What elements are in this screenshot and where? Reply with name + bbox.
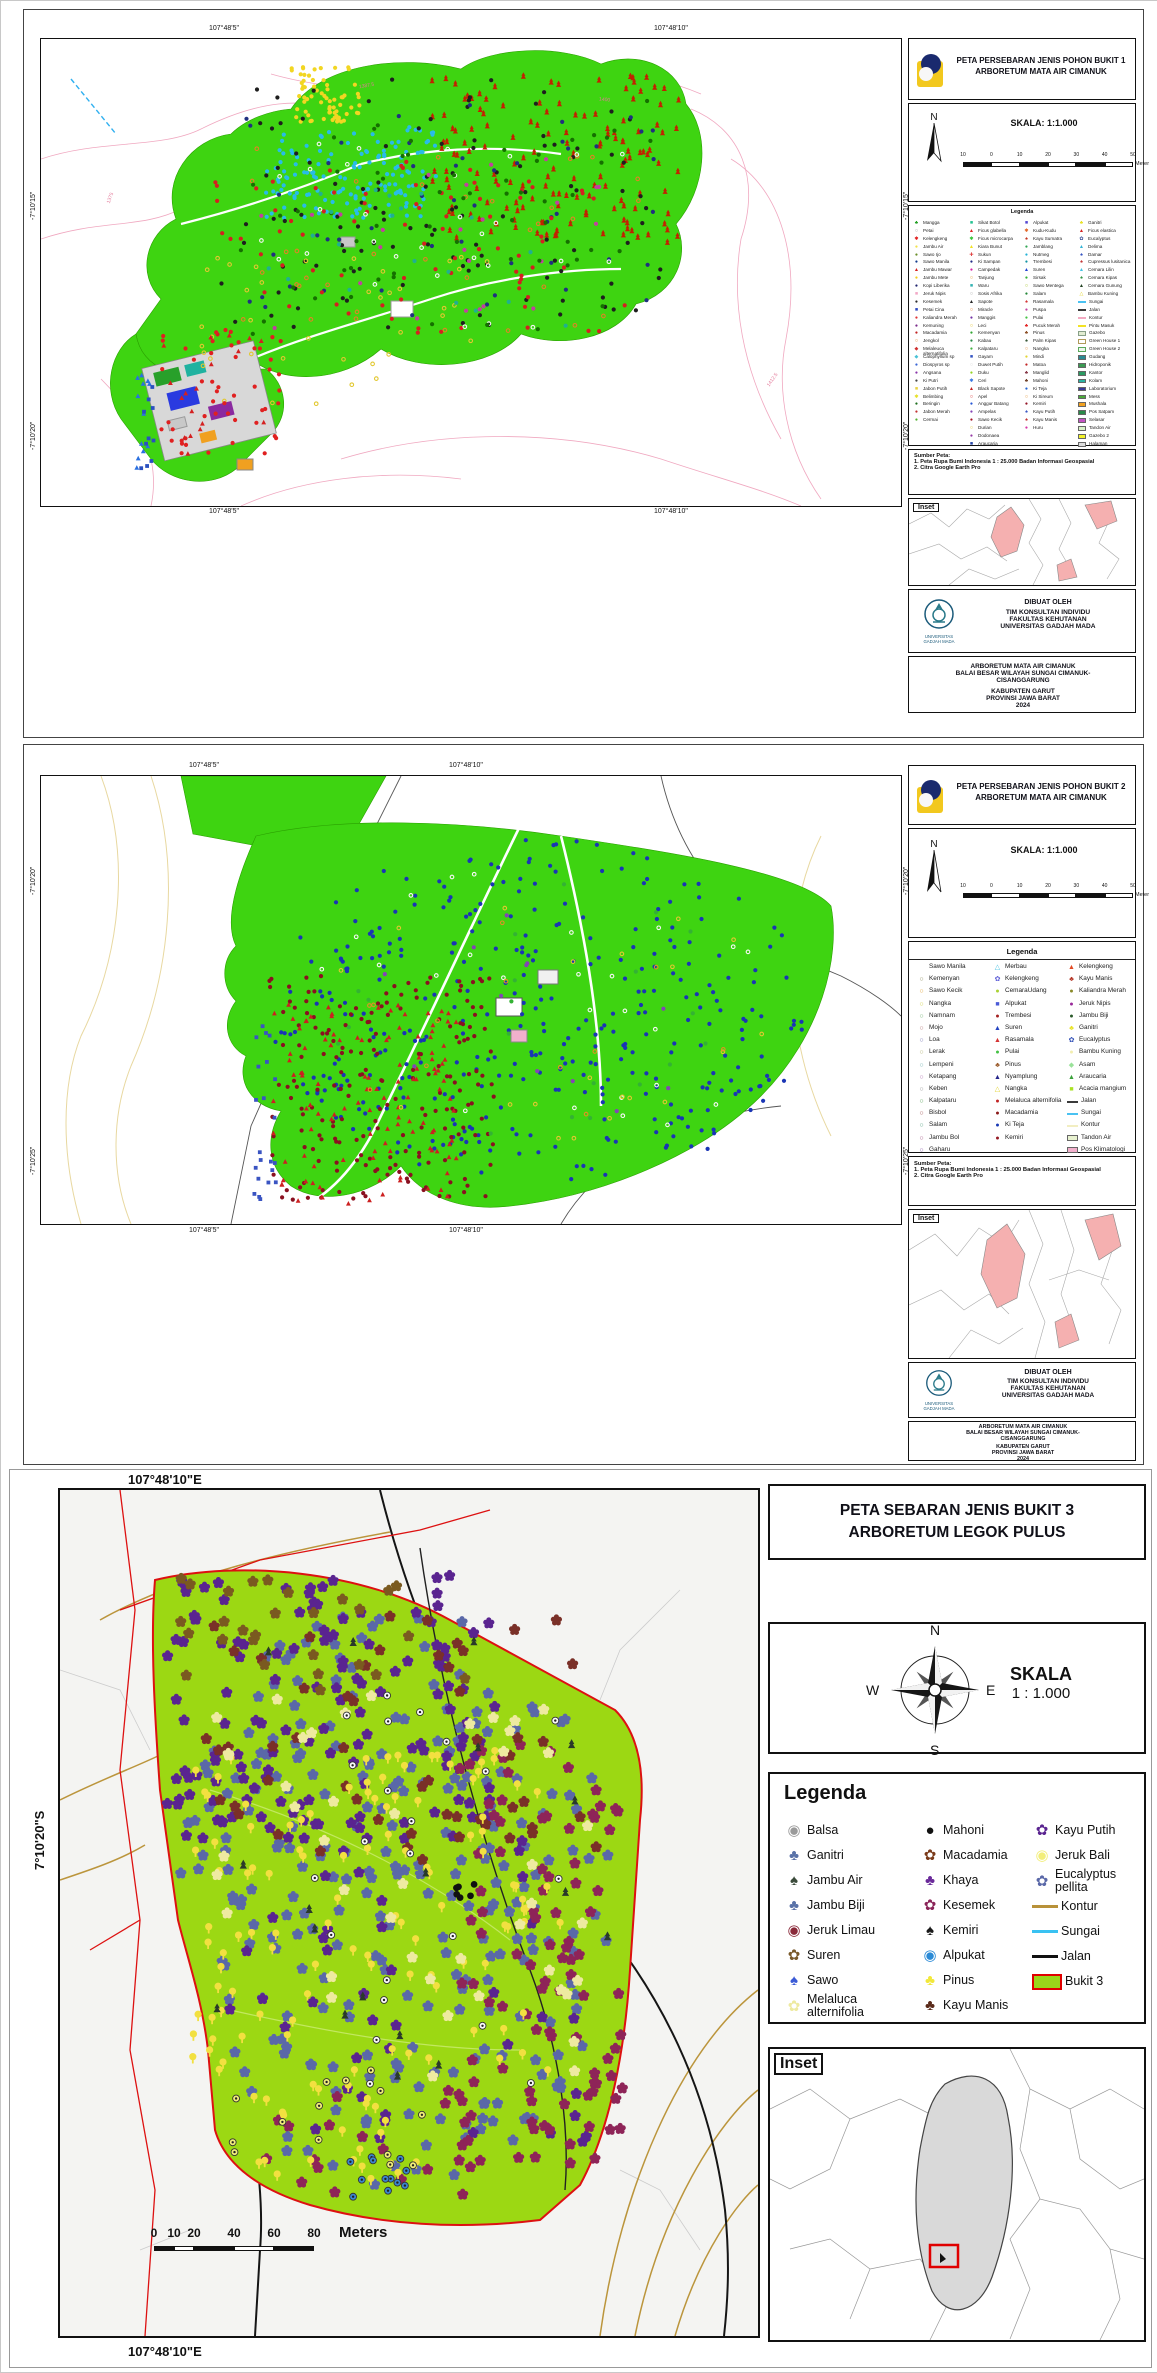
legend-marker-icon: △ — [1078, 292, 1085, 297]
map3-legend-column-3: ✿Kayu Putih◉Jeruk Bali✿Eucalyptus pellit… — [1032, 1818, 1144, 1994]
legend-item: ♣Ganitri — [784, 1843, 912, 1868]
ugm-logo-icon: UNIVERSITASGADJAH MADA — [917, 1369, 961, 1411]
scalebar-number: 10 — [1017, 883, 1023, 889]
loc-line-3: 2024 — [913, 1456, 1133, 1462]
compass-w: W — [866, 1682, 879, 1698]
legend-item-label: Kemiri — [1033, 402, 1046, 407]
map3-title-line1: PETA SEBARAN JENIS BUKIT 3 — [770, 1500, 1144, 1522]
coordinate-label: 107°48'10" — [449, 762, 483, 769]
legend-marker-icon: ● — [913, 276, 920, 281]
scalebar-unit: Meters — [339, 2224, 387, 2241]
legend-item: ●Angsana — [913, 371, 966, 379]
compass-n: N — [930, 1622, 940, 1638]
legend-item: ▲Delima — [1078, 245, 1135, 253]
coordinate-label: -7°10'25" — [30, 1147, 37, 1175]
legend-item-label: Jabon Merah — [923, 410, 950, 415]
legend-item-label: Nangka — [929, 1001, 951, 1008]
map1-legend-column-3: ■Alpukat✱Kudu-Kudu♠Kayu Sumatra●Jamblang… — [1023, 221, 1076, 434]
compass-e: E — [986, 1682, 995, 1698]
legend-marker-icon: ♠ — [1023, 410, 1030, 415]
map3-inset-box: Inset — [768, 2047, 1146, 2342]
legend-item: ●Kaliandra Merah — [1067, 988, 1135, 1000]
legend-title: Legenda — [909, 947, 1135, 960]
legend-item-label: Sungai — [1061, 1925, 1100, 1938]
legend-item: ◆Asam — [1067, 1062, 1135, 1074]
map3-compass-box: N E S W SKALA 1 : 1.000 — [768, 1622, 1146, 1754]
legend-marker-icon: ▲ — [968, 245, 975, 250]
legend-marker-icon: ♣ — [1067, 976, 1076, 983]
legend-item-label: Trembesi — [1033, 260, 1052, 265]
legend-marker-icon — [1078, 309, 1086, 311]
legend-item-label: Mindi — [1033, 355, 1044, 360]
legend-marker-icon: ● — [913, 316, 920, 321]
legend-marker-icon: ● — [1023, 387, 1030, 392]
legend-item-label: Tandon Air — [1081, 1135, 1111, 1142]
legend-marker-icon: ● — [1023, 355, 1030, 360]
org-line-3: CISANGGARUNG — [913, 1436, 1133, 1442]
legend-item-label: Ceri — [978, 379, 986, 384]
legend-item-label: Kemenyan — [929, 976, 960, 983]
legend-item: ●Trembesi — [993, 1013, 1063, 1025]
legend-marker-icon: ● — [968, 331, 975, 336]
legend-item-label: Pucuk Merah — [1033, 324, 1060, 329]
legend-marker-icon: ● — [1023, 260, 1030, 265]
loc-line-3: 2024 — [913, 702, 1133, 709]
legend-item-label: Tanjung — [978, 276, 994, 281]
legend-item-label: Sawo Manila — [929, 964, 966, 971]
legend-marker-icon — [1078, 317, 1086, 319]
legend-item-label: Sukun — [978, 253, 991, 258]
legend-item-label: Kalpataru — [929, 1098, 956, 1105]
legend-item: ◉Jeruk Limau — [784, 1918, 912, 1943]
legend-marker-icon: ○ — [1023, 395, 1030, 400]
legend-item-label: Halaman — [1089, 442, 1107, 447]
legend-marker-icon — [1078, 371, 1086, 376]
legend-marker-icon: ○ — [917, 1086, 926, 1093]
legend-marker-icon: ◉ — [1032, 1848, 1052, 1863]
legend-marker-icon: ♣ — [1023, 324, 1030, 329]
legend-item-label: Kontur — [1061, 1900, 1098, 1913]
legend-item-label: Jambu Biji — [807, 1899, 865, 1912]
scalebar-number: 40 — [1102, 152, 1108, 158]
legend-marker-icon: ♠ — [920, 1923, 940, 1938]
legend-marker-icon: ■ — [968, 355, 975, 360]
legend-marker-icon — [1078, 402, 1086, 407]
scalebar-number: 80 — [307, 2226, 320, 2240]
map1-legend-column-4: ♣Ganitri▲Ficus elastica✿Eucalyptus▲Delim… — [1078, 221, 1135, 450]
legend-item-label: Alpukat — [943, 1949, 985, 1962]
legend-item-label: Kemiri — [1005, 1135, 1023, 1142]
legend-item-label: Pintu Masuk — [1089, 324, 1114, 329]
coordinate-label: -7°10'20" — [30, 867, 37, 895]
map1-legend-column-2: ■Sikat Botol▲Ficus glabella✱Ficus microc… — [968, 221, 1021, 450]
legend-item-label: Jambu Bol — [929, 1135, 959, 1142]
legend-item: ♠Kayu Manis — [1023, 418, 1076, 426]
legend-item: ◉Balsa — [784, 1818, 912, 1843]
legend-item: Laboratorium — [1078, 387, 1135, 395]
legend-marker-icon: ● — [913, 284, 920, 289]
legend-marker-icon: ✱ — [1023, 229, 1030, 234]
legend-marker-icon: ● — [1067, 1049, 1076, 1056]
map3-inset-map — [770, 2049, 1144, 2340]
legend-item: Mess — [1078, 395, 1135, 403]
legend-item-label: Bukit 3 — [1065, 1975, 1103, 1988]
legend-marker-icon: ♣ — [1078, 221, 1085, 226]
legend-item-label: Ketapang — [929, 1074, 956, 1081]
legend-marker-icon: ▲ — [1023, 268, 1030, 273]
map2-title-line1: PETA PERSEBARAN JENIS POHON BUKIT 2 — [951, 782, 1131, 793]
legend-item: ○Lerak — [917, 1049, 987, 1061]
legend-item-label: Petai — [923, 229, 933, 234]
org-line-1: ARBORETUM MATA AIR CIMANUK — [913, 663, 1133, 670]
scalebar-unit: Meter — [1135, 892, 1149, 898]
legend-item-label: Manglid — [1033, 371, 1049, 376]
legend-marker-icon: ● — [968, 410, 975, 415]
legend-marker-icon: ● — [913, 260, 920, 265]
coordinate-label: 107°48'10" — [654, 508, 688, 515]
legend-item-label: Balsa — [807, 1824, 838, 1837]
legend-item-label: Rasamala — [1033, 300, 1054, 305]
legend-marker-icon: ○ — [917, 1135, 926, 1142]
map1-scalebar: 1001020304050Meter — [963, 152, 1133, 178]
legend-item-label: Lerak — [929, 1049, 945, 1056]
legend-item: ●Jamblang — [1023, 245, 1076, 253]
legend-marker-icon: ✿ — [1032, 1874, 1052, 1889]
map1-credit-box: UNIVERSITASGADJAH MADA DIBUAT OLEH TIM K… — [908, 589, 1136, 653]
map-poster-page: 107°48'5" 107°48'10" 107°48'5" 107°48'10… — [0, 0, 1157, 2373]
legend-item: ○Tanjung — [968, 276, 1021, 284]
legend-marker-icon: ♠ — [1078, 276, 1085, 281]
legend-marker-icon: ✱ — [913, 237, 920, 242]
coordinate-label: -7°10'20" — [30, 422, 37, 450]
map2-title-box: PETA PERSEBARAN JENIS POHON BUKIT 2 ARBO… — [908, 765, 1136, 825]
coordinate-label: 107°48'5" — [209, 25, 239, 32]
legend-marker-icon: ◉ — [784, 1823, 804, 1838]
inset-label: Inset — [913, 1214, 939, 1223]
legend-marker-icon: ● — [1023, 292, 1030, 297]
legend-item-label: Jeruk Limau — [807, 1924, 875, 1937]
legend-marker-icon: ▲ — [1067, 1074, 1076, 1081]
map2-inset-box: Inset — [908, 1209, 1136, 1359]
map2-scale-label: SKALA: 1:1.000 — [959, 845, 1129, 855]
legend-item-label: Gaharu — [929, 1147, 950, 1154]
legend-marker-icon: △ — [993, 964, 1002, 971]
legend-item-label: Miracle — [978, 308, 993, 313]
map1-sheet: 107°48'5" 107°48'10" 107°48'5" 107°48'10… — [23, 9, 1144, 738]
legend-item-label: Jengkol — [923, 339, 939, 344]
map1-legend-box: Legenda ♣Mangga○Petai✱Kelengkeng●Jambu A… — [908, 205, 1136, 446]
legend-item-label: Ganitri — [1088, 221, 1102, 226]
legend-item-label: Petai Cina — [923, 308, 944, 313]
legend-marker-icon — [1078, 434, 1086, 439]
legend-marker-icon — [1078, 410, 1086, 415]
legend-item-label: Kontur — [1081, 1122, 1100, 1129]
legend-marker-icon: △ — [993, 1086, 1002, 1093]
scalebar-number: 40 — [227, 2226, 240, 2240]
legend-item: ✿Macadamia — [920, 1843, 1028, 1868]
coordinate-label: 107°48'10"E — [128, 1472, 202, 1487]
legend-item-label: Acacia mangium — [1079, 1086, 1126, 1093]
scalebar-number: 50 — [1130, 152, 1136, 158]
legend-marker-icon: ■ — [913, 387, 920, 392]
legend-item-label: Kemuning — [923, 324, 944, 329]
legend-item-label: Jalan — [1061, 1950, 1091, 1963]
legend-item: ♣Jambu Biji — [784, 1893, 912, 1918]
legend-marker-icon: ● — [1023, 308, 1030, 313]
legend-item-label: Green House 1 — [1089, 339, 1120, 344]
legend-marker-icon: ■ — [968, 221, 975, 226]
legend-item-label: Loa — [929, 1037, 940, 1044]
legend-item-label: Ki Sireum — [1033, 395, 1053, 400]
legend-marker-icon: ○ — [917, 1062, 926, 1069]
legend-marker-icon: ● — [1023, 276, 1030, 281]
legend-item-label: CemaraUdang — [1005, 988, 1047, 995]
map2-inset-map — [909, 1210, 1135, 1358]
legend-item-label: Kantor — [1089, 371, 1103, 376]
legend-marker-icon: ● — [968, 347, 975, 352]
legend-marker-icon: ○ — [917, 1147, 926, 1154]
legend-marker-icon: ◉ — [920, 1948, 940, 1963]
legend-marker-icon: ♣ — [920, 1998, 940, 2013]
credit-heading: DIBUAT OLEH — [965, 599, 1131, 606]
legend-item-label: Nutmeg — [1033, 253, 1049, 258]
scalebar-number: 60 — [267, 2226, 280, 2240]
legend-item: ○Jambu Bol — [917, 1135, 987, 1147]
legend-item-label: Jalan — [1089, 308, 1100, 313]
legend-marker-icon: ○ — [917, 1025, 926, 1032]
legend-marker-icon — [1078, 325, 1086, 327]
legend-marker-icon: ● — [913, 300, 920, 305]
legend-marker-icon — [1078, 347, 1086, 352]
legend-item-label: Mojo — [929, 1025, 943, 1032]
coordinate-label: 107°48'10"E — [128, 2344, 202, 2359]
legend-marker-icon: ▲ — [1078, 268, 1085, 273]
legend-marker-icon: ● — [968, 418, 975, 423]
legend-item: ○Nangka — [917, 1001, 987, 1013]
legend-marker-icon: ▲ — [1078, 229, 1085, 234]
legend-item-label: Melaluca alternifolia — [807, 1993, 912, 2019]
legend-item-label: Puspa — [1033, 308, 1046, 313]
scalebar-number: 10 — [167, 2226, 180, 2240]
legend-marker-icon: ✚ — [968, 253, 975, 258]
legend-item-label: Rasamala — [1005, 1037, 1034, 1044]
legend-marker-icon: ▲ — [1078, 245, 1085, 250]
legend-item: ○Nangka — [1023, 347, 1076, 355]
scalebar-number: 10 — [1017, 152, 1023, 158]
legend-item-label: Palm Kipas — [1033, 339, 1056, 344]
coordinate-label: 107°48'10" — [654, 25, 688, 32]
legend-marker-icon: ○ — [913, 229, 920, 234]
legend-item: ●Manggis — [968, 316, 1021, 324]
legend-marker-icon: ○ — [917, 1110, 926, 1117]
legend-marker-icon: ● — [968, 260, 975, 265]
legend-marker-icon: ♣ — [784, 1848, 804, 1863]
legend-item: ○Bisbol — [917, 1110, 987, 1122]
legend-marker-icon: ● — [1023, 245, 1030, 250]
legend-marker-icon: ■ — [1067, 1086, 1076, 1093]
legend-marker-icon: ✿ — [784, 1948, 804, 1963]
legend-item-label: Araucaria — [1079, 1074, 1106, 1081]
legend-marker-icon: ○ — [968, 426, 975, 431]
legend-marker-icon: ● — [993, 1013, 1002, 1020]
legend-marker-icon — [1078, 301, 1086, 303]
legend-marker-icon: ● — [920, 1823, 940, 1838]
legend-item-label: Eucalyptus pellita — [1055, 1868, 1144, 1894]
legend-marker-icon: ● — [1023, 426, 1030, 431]
legend-item: ✿Eucalyptus pellita — [1032, 1868, 1144, 1894]
legend-item: ●Duku — [968, 371, 1021, 379]
legend-marker-icon: ○ — [968, 308, 975, 313]
credit-line-3: UNIVERSITAS GADJAH MADA — [965, 623, 1131, 630]
legend-item-label: Delima — [1088, 245, 1102, 250]
legend-marker-icon — [1067, 1135, 1078, 1141]
ugm-caption-2: GADJAH MADA — [923, 639, 954, 644]
legend-marker-icon: ● — [968, 268, 975, 273]
legend-item: ○Duwet Putih — [968, 363, 1021, 371]
legend-marker-icon: ● — [913, 331, 920, 336]
legend-item-label: Hidroponik — [1089, 363, 1111, 368]
inset-label: Inset — [774, 2053, 823, 2075]
legend-marker-icon: ○ — [968, 363, 975, 368]
legend-marker-icon: ▲ — [993, 1037, 1002, 1044]
legend-item-label: Asam — [1079, 1062, 1095, 1069]
legend-item-label: Ganitri — [807, 1849, 844, 1862]
map2-legend-column-3: ▲Kelengkeng♣Kayu Manis●Kaliandra Merah●J… — [1067, 964, 1135, 1159]
legend-item-label: Kudu-Kudu — [1033, 229, 1056, 234]
legend-marker-icon: ✿ — [993, 976, 1002, 983]
legend-item: ●Puspa — [1023, 308, 1076, 316]
legend-item: ♣Mahoni — [1023, 379, 1076, 387]
legend-marker-icon: ○ — [917, 1001, 926, 1008]
legend-item: Sungai — [1067, 1110, 1135, 1122]
legend-item-label: Mangga — [923, 221, 940, 226]
legend-item: ●Macadamia — [993, 1110, 1063, 1122]
legend-item: ●Ki Teja — [993, 1122, 1063, 1134]
legend-marker-icon: ○ — [1023, 284, 1030, 289]
map3-legend-column-2: ●Mahoni✿Macadamia♣Khaya✿Kesemek♠Kemiri◉A… — [920, 1818, 1028, 2018]
legend-marker-icon: ○ — [917, 976, 926, 983]
map2-credit-box: UNIVERSITASGADJAH MADA DIBUAT OLEH TIM K… — [908, 1362, 1136, 1418]
legend-item-label: Khaya — [943, 1874, 978, 1887]
legend-item-label: Sawo Kecik — [929, 988, 962, 995]
legend-item-label: Suren — [807, 1949, 840, 1962]
legend-item-label: Macadamia — [923, 331, 947, 336]
coordinate-label: 107°48'5" — [209, 508, 239, 515]
legend-item-label: Kiara Bunut — [978, 245, 1002, 250]
legend-marker-icon: ▲ — [968, 387, 975, 392]
legend-item-label: Jeruk Nipis — [923, 292, 946, 297]
legend-item-label: Cemara Lilin — [1088, 268, 1114, 273]
legend-item-label: Alpukat — [1005, 1001, 1026, 1008]
legend-marker-icon: ● — [1067, 1013, 1076, 1020]
legend-marker-icon — [1067, 1125, 1078, 1127]
scalebar-number: 20 — [187, 2226, 200, 2240]
legend-item: ●Matoa — [1023, 363, 1076, 371]
legend-marker-icon: ● — [968, 402, 975, 407]
credit-line-2: FAKULTAS KEHUTANAN — [965, 1385, 1131, 1392]
scalebar-number: 0 — [990, 883, 993, 889]
legend-item: ♠Palm Kipas — [1023, 339, 1076, 347]
legend-item-label: Ficus elastica — [1088, 229, 1116, 234]
legend-item: ●CemaraUdang — [993, 988, 1063, 1000]
legend-item-label: Cemara Gunung — [1088, 284, 1122, 289]
legend-item: Kantor — [1078, 371, 1135, 379]
legend-marker-icon — [1078, 331, 1086, 336]
legend-item: ▲Black Sapote — [968, 387, 1021, 395]
map3-title-line2: ARBORETUM LEGOK PULUS — [770, 1522, 1144, 1544]
legend-item: ▲Rasamala — [993, 1037, 1063, 1049]
legend-item: ♣Pinus — [920, 1968, 1028, 1993]
map3-legend-column-1: ◉Balsa♣Ganitri♠Jambu Air♣Jambu Biji◉Jeru… — [784, 1818, 912, 2019]
legend-item-label: Sawo Manila — [923, 260, 949, 265]
scalebar-number: 0 — [151, 2226, 158, 2240]
legend-item-label: Duwet Putih — [978, 363, 1003, 368]
legend-item-label: Laboratorium — [1089, 387, 1116, 392]
legend-item: ●Bambu Kuning — [1067, 1049, 1135, 1061]
legend-marker-icon — [1032, 1930, 1058, 1933]
map2-map-svg — [41, 776, 901, 1224]
legend-item-label: Keben — [929, 1086, 947, 1093]
legend-marker-icon: ○ — [913, 339, 920, 344]
map3-legend-box: Legenda ◉Balsa♣Ganitri♠Jambu Air♣Jambu B… — [768, 1772, 1146, 2024]
legend-marker-icon: ♣ — [913, 221, 920, 226]
legend-marker-icon: ♣ — [920, 1973, 940, 1988]
legend-marker-icon: ● — [1023, 253, 1030, 258]
legend-item: ■Acacia mangium — [1067, 1086, 1135, 1098]
legend-item: ●Kalpataru — [968, 347, 1021, 355]
legend-item-label: Ganitri — [1079, 1025, 1098, 1032]
legend-item: ●Huru — [1023, 426, 1076, 434]
legend-marker-icon: ● — [913, 245, 920, 250]
legend-item: Sungai — [1078, 300, 1135, 308]
legend-item-label: Durian — [978, 426, 992, 431]
legend-item-label: Macadamia — [943, 1849, 1008, 1862]
legend-marker-icon: ◆ — [1067, 1062, 1076, 1069]
legend-marker-icon — [1078, 363, 1086, 368]
legend-marker-icon: ■ — [913, 292, 920, 297]
legend-item-label: Jamblang — [1033, 245, 1053, 250]
legend-item-label: Mess — [1089, 395, 1100, 400]
legend-item-label: Damar — [1088, 253, 1102, 258]
map1-title-line2: ARBORETUM MATA AIR CIMANUK — [951, 67, 1131, 78]
project-logo-icon — [916, 778, 946, 814]
legend-item-label: Salam — [929, 1122, 947, 1129]
legend-item: ●Macadamia — [913, 331, 966, 339]
credit-line-1: TIM KONSULTAN INDIVIDU — [965, 609, 1131, 616]
legend-item: Bukit 3 — [1032, 1969, 1144, 1994]
legend-marker-icon: ♣ — [1023, 331, 1030, 336]
legend-item-label: Sawo Kecik — [978, 418, 1002, 423]
legend-item-label: Suren — [1005, 1025, 1022, 1032]
legend-marker-icon: ○ — [968, 276, 975, 281]
legend-item-label: Matoa — [1033, 363, 1046, 368]
project-logo-icon — [916, 52, 946, 88]
map3-scale-value: 1 : 1.000 — [1010, 1685, 1072, 1702]
legend-item-label: Bambu Kuning — [1079, 1049, 1121, 1056]
compass-rose-icon: N E S W — [880, 1634, 990, 1746]
legend-item-label: Gazebo — [1089, 331, 1105, 336]
legend-item-label: Kolam — [1089, 379, 1102, 384]
legend-item: Green House 2 — [1078, 347, 1135, 355]
legend-item-label: Ki Sampan — [978, 260, 1000, 265]
legend-item-label: Jambu Biji — [1079, 1013, 1108, 1020]
legend-item-label: Selasar — [1089, 418, 1105, 423]
legend-marker-icon: ♠ — [1023, 418, 1030, 423]
legend-item-label: Pulai — [1033, 316, 1043, 321]
legend-item: ♣Mangga — [913, 221, 966, 229]
scalebar-number: 20 — [1045, 883, 1051, 889]
map3-map-svg — [60, 1490, 758, 2336]
